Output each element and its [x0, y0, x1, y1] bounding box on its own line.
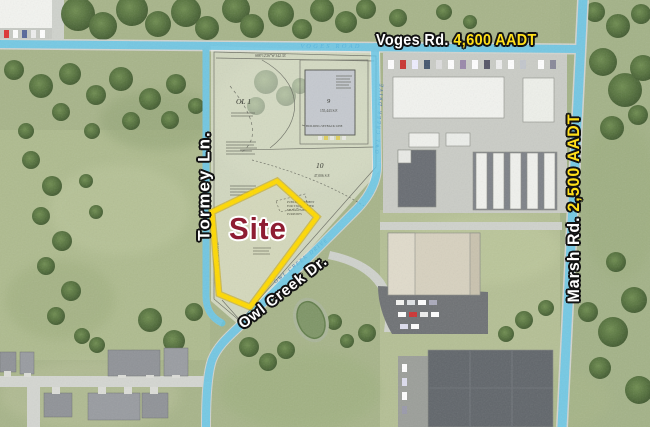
voges-road-aadt: 4,600 AADT	[453, 32, 536, 49]
marsh-road-name: Marsh Rd.	[565, 216, 583, 302]
aerial-basemap: VOGES ROAD S88°12'26"W 342.33' OL 1 9 15…	[0, 0, 650, 427]
tormey-lane-name: Tormey Ln.	[195, 130, 214, 240]
marsh-road-label: Marsh Rd.2,500 AADT	[566, 128, 583, 303]
photo-grain	[0, 0, 650, 427]
voges-road-name: Voges Rd.	[376, 32, 449, 49]
tormey-lane-label: Tormey Ln.	[196, 124, 213, 248]
site-callout-label: Site	[229, 213, 287, 244]
voges-road-label: Voges Rd.4,600 AADT	[376, 33, 537, 49]
marsh-road-aadt: 2,500 AADT	[565, 114, 583, 212]
aerial-site-map: VOGES ROAD S88°12'26"W 342.33' OL 1 9 15…	[0, 0, 650, 427]
